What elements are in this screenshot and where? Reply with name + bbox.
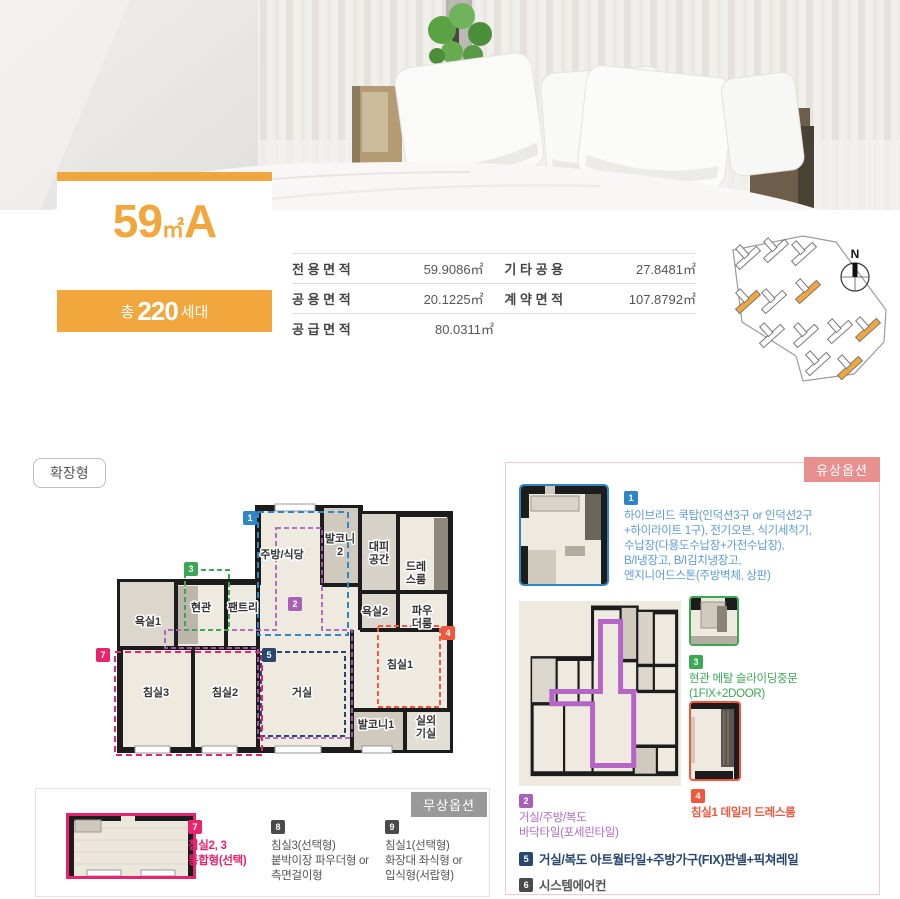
option3-line: (1FIX+2DOOR)	[689, 687, 798, 702]
option4-dressroom-thumbnail	[689, 701, 741, 781]
option9-number-badge: 9	[385, 820, 399, 834]
option3-line: 현관 메탈 슬라이딩중문	[689, 672, 798, 687]
area-value: 20.1225㎡	[379, 289, 483, 308]
unit-size-unit: ㎡	[162, 217, 184, 242]
plan-badge-1: 1	[247, 513, 252, 523]
area-label: 공 급 면 적	[292, 319, 384, 338]
household-count-badge: 총 220 세대	[57, 290, 272, 332]
household-prefix: 총	[121, 301, 135, 322]
floor-plan-page: 59㎡A 총 220 세대 전 용 면 적 59.9086㎡ 기 타 공 용 2…	[0, 0, 900, 899]
area-label: 계 약 면 적	[504, 289, 591, 308]
plan-badge-4: 4	[445, 628, 450, 638]
area-value: 80.0311㎡	[384, 319, 494, 338]
option3-entry-thumbnail	[689, 596, 739, 646]
room-balcony2-num: 2	[337, 546, 343, 558]
room-dressroom: 드레	[406, 559, 426, 573]
room-bed3: 침실3	[143, 685, 169, 699]
option1-line: +하이라이트 1구), 전기오븐, 식기세척기,	[624, 524, 812, 539]
option6-row: 6 시스템에어컨	[519, 875, 606, 894]
option4-line: 침실1 데일리 드레스룸	[691, 806, 795, 821]
room-living: 거실	[292, 685, 312, 699]
option9-line: 화장대 좌식형 or	[385, 854, 462, 869]
floor-plan: 1 2 3 4 5 7 주방/식당 발코니 2 대피 공간 드레 스룸 현관 팬…	[90, 498, 460, 773]
option7-number-badge: 7	[188, 820, 202, 834]
area-value: 59.9086㎡	[379, 259, 483, 278]
option2-line: 바닥타일(포세린타일)	[519, 826, 619, 841]
room-entry: 현관	[191, 600, 211, 614]
unit-title: 59㎡A	[57, 194, 272, 248]
area-label: 전 용 면 적	[292, 259, 379, 278]
option5-row: 5 거실/복도 아트월타일+주방가구(FIX)판넬+픽쳐레일	[519, 849, 798, 868]
paid-options-panel: 유상옵션 1 하이브리드 쿡탑(인덕션3구 or 인덕션2구 +하이라이트 1구…	[505, 462, 880, 895]
option3-number-badge: 3	[689, 655, 703, 669]
hero-headboard	[352, 86, 402, 172]
free-options-tab: 무상옵션	[411, 792, 487, 817]
area-label: 공 용 면 적	[292, 289, 379, 308]
site-plan: N	[708, 228, 893, 398]
option5-number-badge: 5	[519, 852, 533, 866]
room-powder-2: 더룸	[412, 616, 432, 630]
unit-type: A	[184, 195, 216, 247]
room-outdoor-unit: 실외	[416, 713, 436, 727]
household-count: 220	[137, 296, 177, 327]
free-options-panel: 무상옵션 7 침실2, 3 통합형(선택) 8	[35, 788, 490, 897]
option5-line: 거실/복도 아트월타일+주방가구(FIX)판넬+픽쳐레일	[539, 849, 798, 868]
option7-line: 통합형(선택)	[188, 854, 246, 869]
accent-bar	[57, 172, 272, 181]
compass-n-label: N	[851, 247, 860, 261]
option8-line: 붙박이장 파우더형 or	[271, 854, 369, 869]
option8-text: 8 침실3(선택형) 붙박이장 파우더형 or 측면걸이형	[271, 817, 369, 884]
unit-size-number: 59	[113, 195, 162, 247]
room-powder: 파우	[412, 603, 432, 617]
option8-number-badge: 8	[271, 820, 285, 834]
room-bed1: 침실1	[387, 657, 413, 671]
room-kitchen: 주방/식당	[260, 547, 304, 561]
household-suffix: 세대	[181, 301, 209, 322]
option7-line: 침실2, 3	[188, 839, 246, 854]
option1-kitchen-thumbnail	[519, 484, 609, 586]
option4-number-badge: 4	[691, 789, 705, 803]
room-pantry: 팬트리	[228, 600, 258, 614]
option1-line: 수납장(다용도수납장+가전수납장),	[624, 539, 812, 554]
area-table: 전 용 면 적 59.9086㎡ 기 타 공 용 27.8481㎡ 공 용 면 …	[292, 253, 696, 343]
room-bath1: 욕실1	[135, 614, 161, 628]
option6-line: 시스템에어컨	[539, 875, 606, 894]
option6-number-badge: 6	[519, 878, 533, 892]
plan-badge-3: 3	[188, 564, 193, 574]
option2-plan-image	[519, 601, 681, 786]
plan-type-label: 확장형	[33, 458, 106, 488]
option7-merged-bedroom-thumbnail	[66, 813, 196, 879]
option8-line: 측면걸이형	[271, 869, 369, 884]
plan-badge-7: 7	[100, 650, 105, 660]
plan-badge-5: 5	[266, 650, 271, 660]
option1-line: 하이브리드 쿡탑(인덕션3구 or 인덕션2구	[624, 509, 812, 524]
option1-number-badge: 1	[624, 491, 638, 505]
option2-text: 2 거실/주방/복도 바닥타일(포세린타일)	[519, 791, 619, 841]
option1-line: 엔지니어드스톤(주방벽체, 상판)	[624, 569, 812, 584]
option1-line: B/I냉장고, B/I김치냉장고,	[624, 554, 812, 569]
option7-text: 7 침실2, 3 통합형(선택)	[188, 817, 246, 869]
area-label: 기 타 공 용	[504, 259, 591, 278]
option2-number-badge: 2	[519, 794, 533, 808]
room-shelter: 대피	[369, 539, 389, 553]
table-row: 전 용 면 적 59.9086㎡ 기 타 공 용 27.8481㎡	[292, 253, 696, 283]
room-shelter-2: 공간	[369, 552, 389, 566]
room-dressroom-2: 스룸	[406, 573, 426, 586]
option8-line: 침실3(선택형)	[271, 839, 369, 854]
option9-line: 침실1(선택형)	[385, 839, 462, 854]
room-outdoor-unit-2: 기실	[416, 726, 436, 740]
option3-text: 3 현관 메탈 슬라이딩중문 (1FIX+2DOOR)	[689, 652, 798, 702]
table-row: 공 용 면 적 20.1225㎡ 계 약 면 적 107.8792㎡	[292, 283, 696, 313]
option1-text: 1 하이브리드 쿡탑(인덕션3구 or 인덕션2구 +하이라이트 1구), 전기…	[624, 488, 812, 584]
option4-text: 4 침실1 데일리 드레스룸	[691, 786, 795, 821]
table-row: 공 급 면 적 80.0311㎡	[292, 313, 696, 343]
option2-line: 거실/주방/복도	[519, 811, 619, 826]
room-balcony2: 발코니	[325, 531, 355, 545]
room-bath2: 욕실2	[362, 604, 388, 618]
room-balcony1: 발코니1	[358, 717, 394, 731]
option9-line: 입식형(서랍형)	[385, 869, 462, 884]
area-value: 107.8792㎡	[592, 289, 696, 308]
area-value: 27.8481㎡	[592, 259, 696, 278]
paid-options-tab: 유상옵션	[804, 457, 880, 482]
room-bed2: 침실2	[212, 685, 238, 699]
option9-text: 9 침실1(선택형) 화장대 좌식형 or 입식형(서랍형)	[385, 817, 462, 884]
plan-badge-2: 2	[292, 599, 297, 609]
